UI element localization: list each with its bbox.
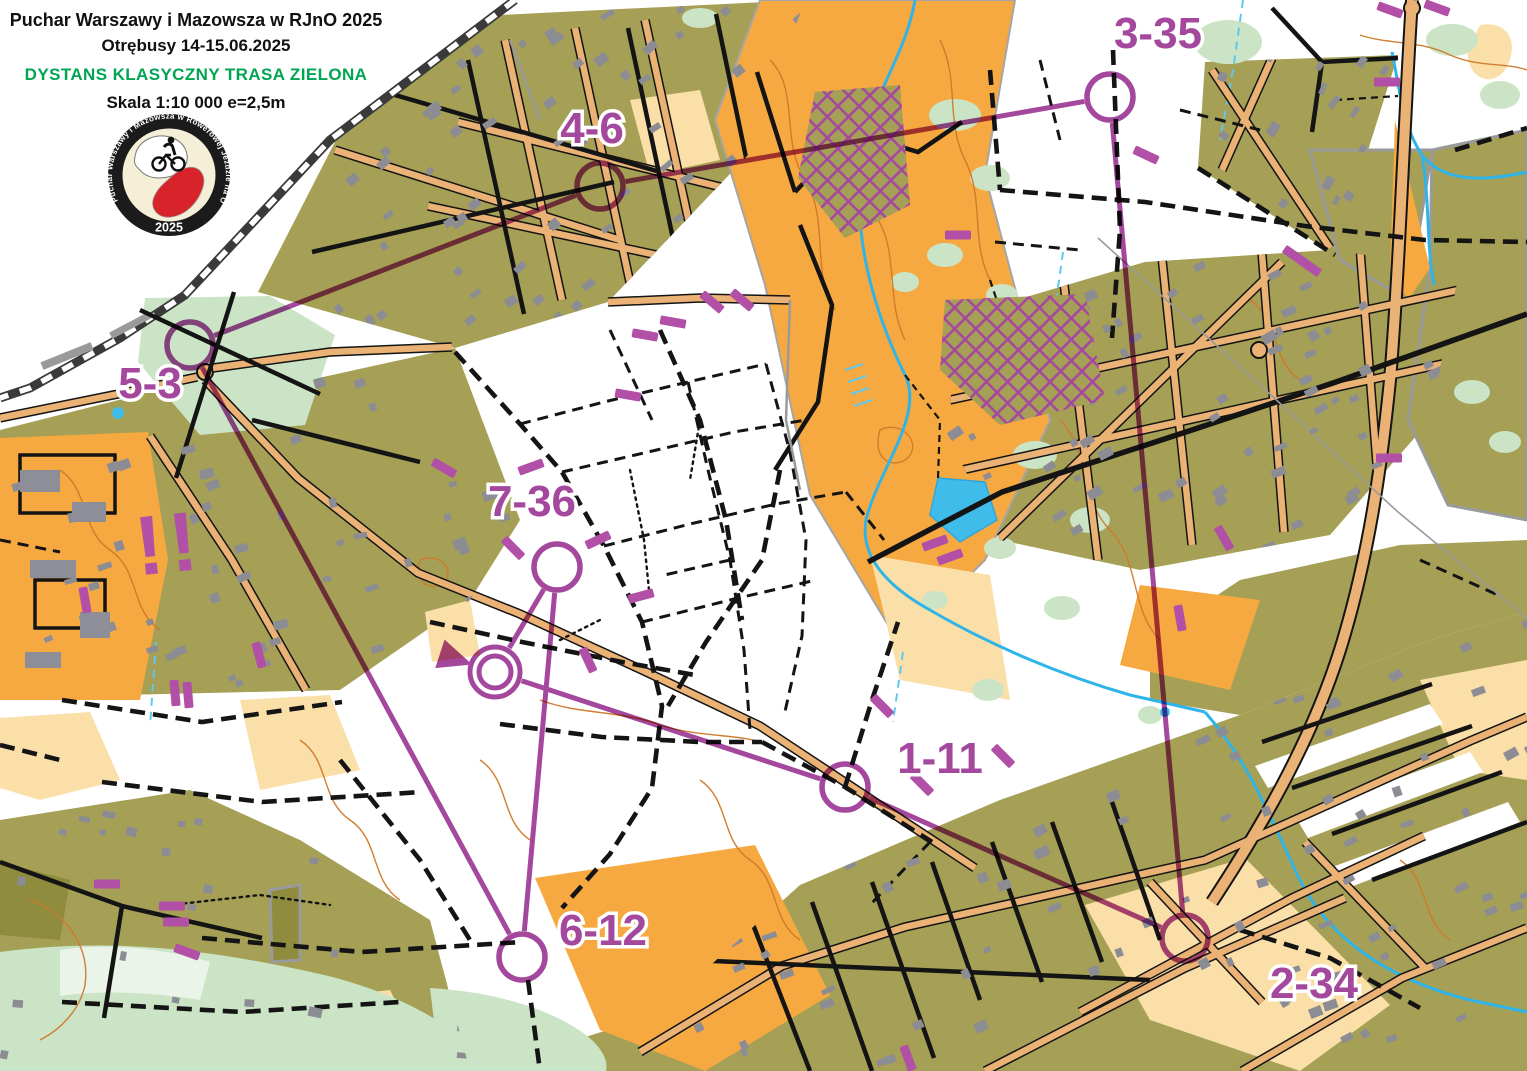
event-title: Puchar Warszawy i Mazowsza w RJnO 2025 bbox=[0, 10, 392, 31]
warning-exclamation: !! bbox=[130, 493, 207, 594]
forbidden-route-mark bbox=[1376, 454, 1402, 463]
map-scale: Skala 1:10 000 e=2,5m bbox=[0, 93, 392, 113]
control-code-label: 6-12 bbox=[559, 906, 647, 955]
forbidden-route-mark bbox=[945, 231, 971, 240]
forbidden-route-mark bbox=[1374, 78, 1400, 87]
event-date-location: Otrębusy 14-15.06.2025 bbox=[0, 36, 392, 56]
event-logo: Puchar Warszawy i Mazowsza w Rowerowej J… bbox=[106, 112, 232, 238]
forbidden-route-mark bbox=[94, 880, 120, 889]
map-header: Puchar Warszawy i Mazowsza w RJnO 2025 O… bbox=[0, 0, 392, 113]
control-code-label: 3-35 bbox=[1114, 9, 1202, 58]
control-code-label: 2-34 bbox=[1270, 959, 1359, 1008]
control-code-label: 5-3 bbox=[118, 359, 182, 408]
forbidden-route-mark bbox=[159, 902, 185, 911]
course-name: DYSTANS KLASYCZNY TRASA ZIELONA bbox=[0, 65, 392, 85]
control-code-label: 1-11 bbox=[897, 734, 983, 783]
forbidden-route-mark bbox=[163, 918, 189, 927]
control-code-label: 4-6 bbox=[560, 104, 624, 153]
logo-year: 2025 bbox=[155, 221, 183, 235]
control-code-label: 7-36 bbox=[488, 477, 576, 526]
